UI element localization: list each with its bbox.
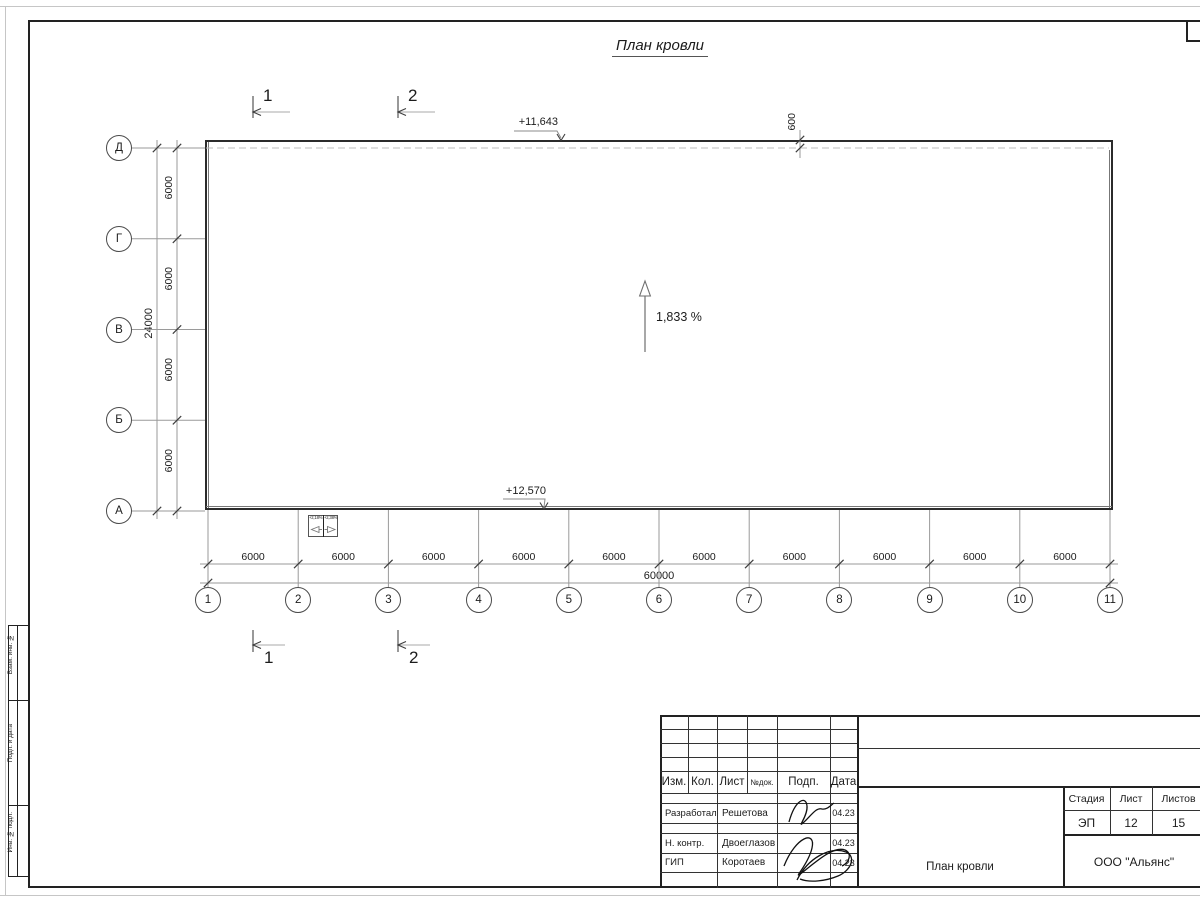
stamp-line xyxy=(1063,810,1200,811)
dim-tick xyxy=(835,560,843,568)
dim-col-spacing: 6000 xyxy=(1049,551,1081,563)
axis-circle-col: 1 xyxy=(195,587,221,613)
stamp-column-header: Кол. xyxy=(688,771,717,793)
stamp-role: Н. контр. xyxy=(662,833,717,853)
stamp-line xyxy=(660,757,857,758)
sheet-edge-bottom xyxy=(0,895,1200,896)
dim-col-spacing: 6000 xyxy=(508,551,540,563)
dim-tick xyxy=(204,579,212,587)
axis-circle-col: 2 xyxy=(285,587,311,613)
dim-col-spacing: 6000 xyxy=(327,551,359,563)
funnel-label-right: +2,38% xyxy=(324,516,337,520)
sheet-edge-top xyxy=(0,6,1200,7)
stamp-stage-value: ЭП xyxy=(1063,810,1110,835)
stamp-line xyxy=(660,872,857,873)
dim-tick xyxy=(1106,560,1114,568)
dim-tick xyxy=(745,560,753,568)
dim-tick xyxy=(294,560,302,568)
stamp-line xyxy=(660,715,1200,717)
dim-row-spacing: 6000 xyxy=(163,449,175,472)
stamp-line xyxy=(660,729,857,730)
section-mark-number-top: 1 xyxy=(263,86,272,106)
strip-line xyxy=(8,700,29,701)
stamp-line xyxy=(660,743,857,744)
axis-circle-col: 3 xyxy=(375,587,401,613)
elevation-bottom: +12,570 xyxy=(500,485,546,497)
section-mark-number-top: 2 xyxy=(408,86,417,106)
dim-col-spacing: 6000 xyxy=(418,551,450,563)
drawing-sheet: Взам. инв. № Подп. и дата Инв. № подл. П… xyxy=(0,0,1200,900)
drawing-title: План кровли xyxy=(560,37,760,57)
axis-circle-col: 9 xyxy=(917,587,943,613)
dim-tick xyxy=(173,325,181,333)
stamp-column-header: №док. xyxy=(747,771,777,793)
stamp-line xyxy=(1063,786,1065,888)
drawing-title-text: План кровли xyxy=(612,37,708,57)
section-mark-arrow xyxy=(253,109,261,116)
axis-circle-col: 11 xyxy=(1097,587,1123,613)
stamp-sheet-label: Лист xyxy=(1110,787,1152,810)
strip-label-inv: Инв. № подл. xyxy=(7,812,14,853)
dim-tick xyxy=(153,507,161,515)
strip-label-podp: Подп. и дата xyxy=(7,724,14,762)
stamp-line xyxy=(1063,834,1200,836)
stamp-column-header: Изм. xyxy=(660,771,688,793)
dim-tick xyxy=(925,560,933,568)
section-mark-arrow xyxy=(253,642,261,649)
strip-line xyxy=(8,625,29,626)
stamp-name: Коротаев xyxy=(719,853,777,872)
dim-col-spacing: 6000 xyxy=(237,551,269,563)
dim-col-spacing: 6000 xyxy=(869,551,901,563)
dim-tick xyxy=(173,144,181,152)
section-mark-arrow xyxy=(398,642,406,649)
dim-col-spacing: 6000 xyxy=(959,551,991,563)
stamp-role: ГИП xyxy=(662,853,717,872)
axis-circle-row: Г xyxy=(106,226,132,252)
corner-sheet-number-box xyxy=(1186,20,1200,42)
stamp-column-header: Подп. xyxy=(777,771,830,793)
axis-circle-row: Д xyxy=(106,135,132,161)
slope-value: 1,833 % xyxy=(656,310,702,324)
stamp-column-header: Дата xyxy=(830,771,857,793)
axis-circle-row: Б xyxy=(106,407,132,433)
elevation-top: +11,643 xyxy=(512,116,558,128)
axis-circle-col: 8 xyxy=(826,587,852,613)
dim-tick xyxy=(173,235,181,243)
stamp-line xyxy=(1152,786,1153,835)
axis-circle-row: В xyxy=(106,317,132,343)
axis-circle-col: 7 xyxy=(736,587,762,613)
dim-col-spacing: 6000 xyxy=(778,551,810,563)
stamp-sheet-value: 12 xyxy=(1110,810,1152,835)
dim-tick xyxy=(1016,560,1024,568)
frame-left xyxy=(28,20,30,888)
frame-top xyxy=(28,20,1200,22)
section-mark-arrow xyxy=(398,109,406,116)
stamp-line xyxy=(857,715,859,888)
axis-circle-col: 10 xyxy=(1007,587,1033,613)
stamp-sheets-label: Листов xyxy=(1152,787,1200,810)
stamp-date: 04.23 xyxy=(830,833,857,853)
stamp-line xyxy=(1110,786,1111,835)
strip-line xyxy=(8,876,29,877)
section-mark-number-bottom: 1 xyxy=(264,648,273,668)
dim-tick xyxy=(173,416,181,424)
stamp-name: Решетова xyxy=(719,803,777,823)
stamp-line xyxy=(857,786,1200,788)
strip-line xyxy=(8,805,29,806)
dim-tick xyxy=(173,507,181,515)
stamp-role: Разработал xyxy=(662,803,717,823)
stamp-stage-label: Стадия xyxy=(1063,787,1110,810)
dim-tick xyxy=(474,560,482,568)
stamp-column-header: Лист xyxy=(717,771,747,793)
dim-tick xyxy=(204,560,212,568)
stamp-line xyxy=(777,715,778,888)
stamp-sheets-value: 15 xyxy=(1152,810,1200,835)
stamp-date: 04.23 xyxy=(830,803,857,823)
dim-row-spacing: 6000 xyxy=(163,358,175,381)
axis-circle-col: 6 xyxy=(646,587,672,613)
axis-circle-row: А xyxy=(106,498,132,524)
stamp-name: Двоеглазов xyxy=(719,833,777,853)
stamp-company: ООО "Альянс" xyxy=(1063,835,1200,888)
stamp-line xyxy=(717,715,718,888)
sheet-edge-left xyxy=(5,6,6,895)
dim-overhang: 600 xyxy=(786,113,798,131)
dim-tick xyxy=(655,560,663,568)
stamp-date: 04.23 xyxy=(830,853,857,872)
stamp-doc-name: План кровли xyxy=(857,787,1063,888)
axis-circle-col: 4 xyxy=(466,587,492,613)
stamp-line xyxy=(660,793,857,794)
funnel-label-left: +2,18% xyxy=(309,516,322,520)
dim-col-total: 60000 xyxy=(639,570,679,582)
dim-row-spacing: 6000 xyxy=(163,267,175,290)
dim-col-spacing: 6000 xyxy=(598,551,630,563)
roof-outline xyxy=(205,140,1113,510)
dim-tick xyxy=(1106,579,1114,587)
dim-row-total: 24000 xyxy=(143,308,155,339)
stamp-line xyxy=(857,748,1200,749)
dim-col-spacing: 6000 xyxy=(688,551,720,563)
dim-row-spacing: 6000 xyxy=(163,176,175,199)
dim-tick xyxy=(153,144,161,152)
axis-circle-col: 5 xyxy=(556,587,582,613)
strip-divider xyxy=(17,625,18,877)
section-mark-number-bottom: 2 xyxy=(409,648,418,668)
stamp-line xyxy=(660,823,857,824)
dim-tick xyxy=(384,560,392,568)
dim-tick xyxy=(565,560,573,568)
elevation-leader xyxy=(514,131,561,138)
strip-label-vzam: Взам. инв. № xyxy=(7,634,14,674)
